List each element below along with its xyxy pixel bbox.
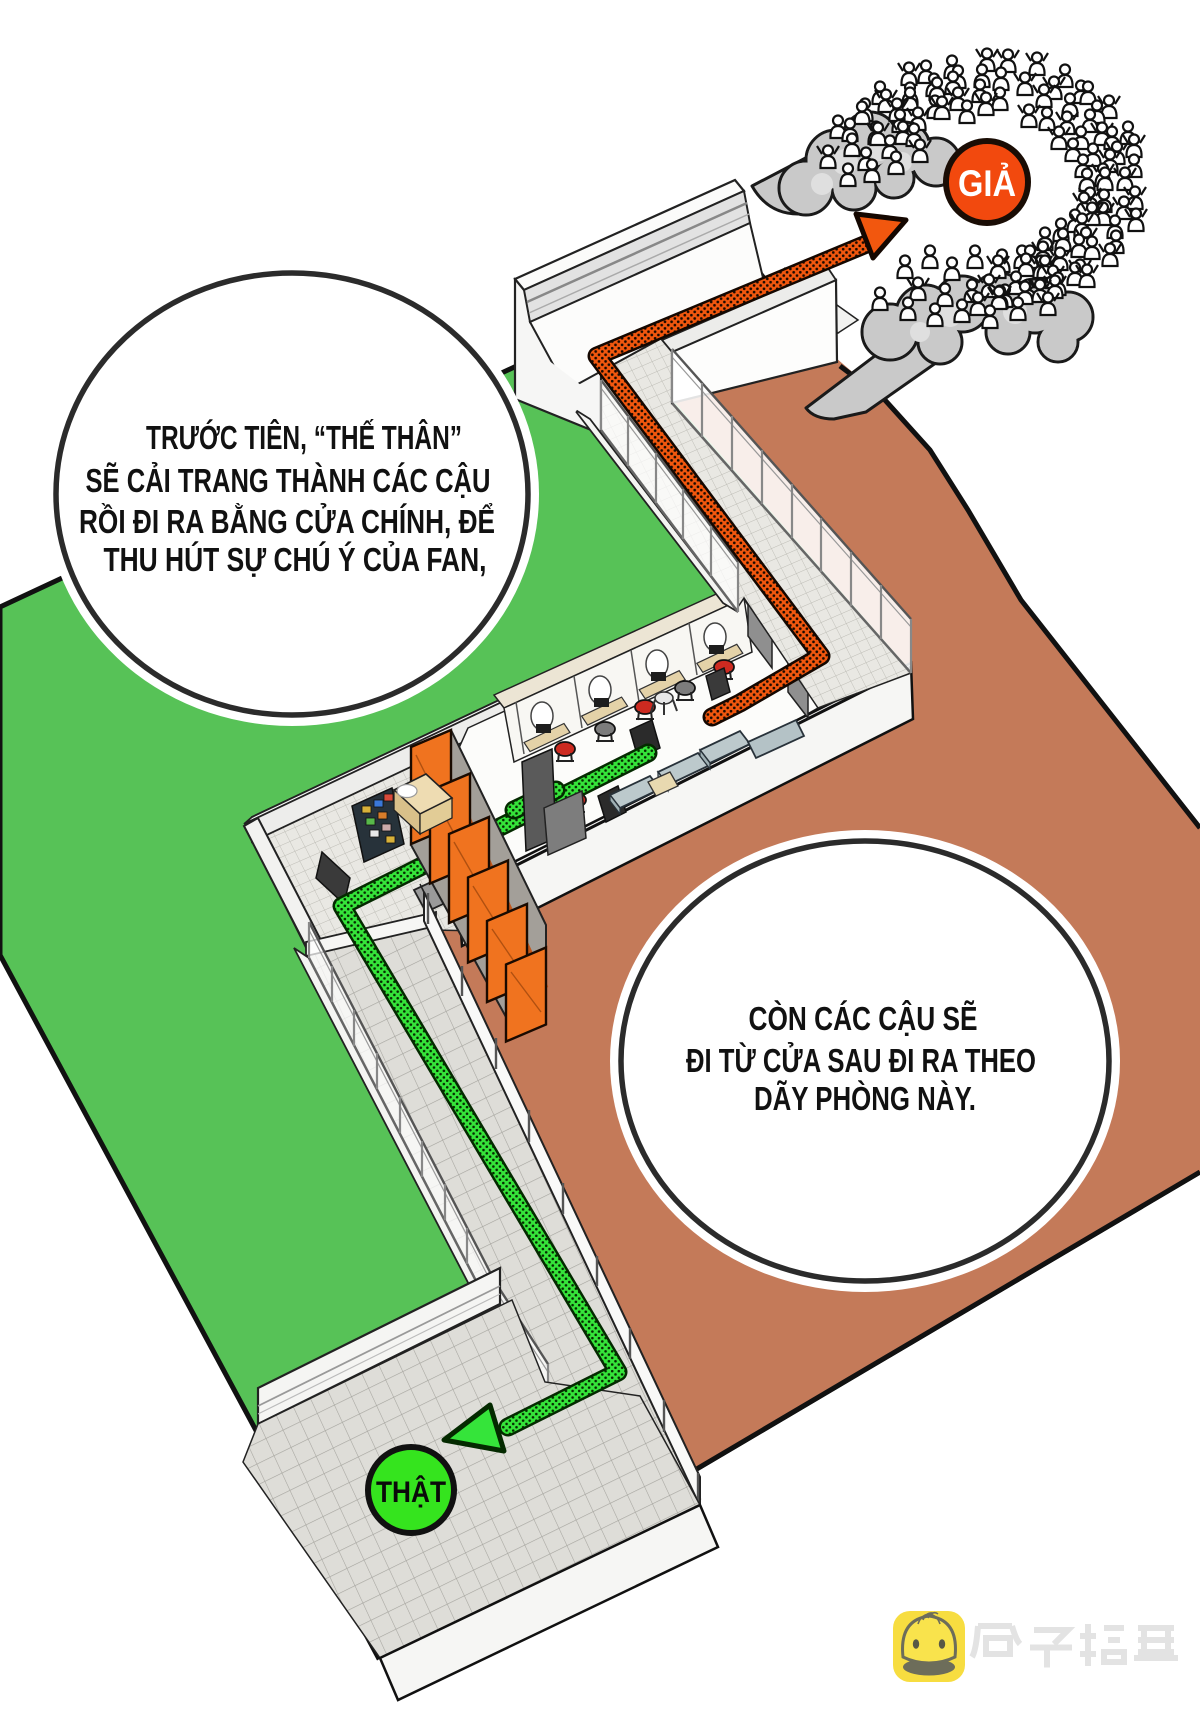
svg-text:DÃY PHÒNG NÀY.: DÃY PHÒNG NÀY. <box>754 1080 976 1117</box>
svg-text:ĐI TỪ CỬA SAU ĐI RA THEO: ĐI TỪ CỬA SAU ĐI RA THEO <box>686 1042 1036 1079</box>
svg-text:SẼ CẢI TRANG THÀNH CÁC CẬU: SẼ CẢI TRANG THÀNH CÁC CẬU <box>86 462 491 499</box>
svg-text:THẬT: THẬT <box>376 1475 446 1509</box>
svg-text:THU HÚT SỰ CHÚ Ý CỦA FAN,: THU HÚT SỰ CHÚ Ý CỦA FAN, <box>104 541 487 578</box>
svg-text:GIẢ: GIẢ <box>958 163 1016 204</box>
svg-text:CÒN CÁC CẬU SẼ: CÒN CÁC CẬU SẼ <box>749 1000 978 1037</box>
svg-text:TRƯỚC TIÊN, “THẾ THÂN”: TRƯỚC TIÊN, “THẾ THÂN” <box>146 419 462 456</box>
svg-text:RỒI ĐI RA BẰNG CỬA CHÍNH, ĐỂ: RỒI ĐI RA BẰNG CỬA CHÍNH, ĐỂ <box>79 503 495 540</box>
